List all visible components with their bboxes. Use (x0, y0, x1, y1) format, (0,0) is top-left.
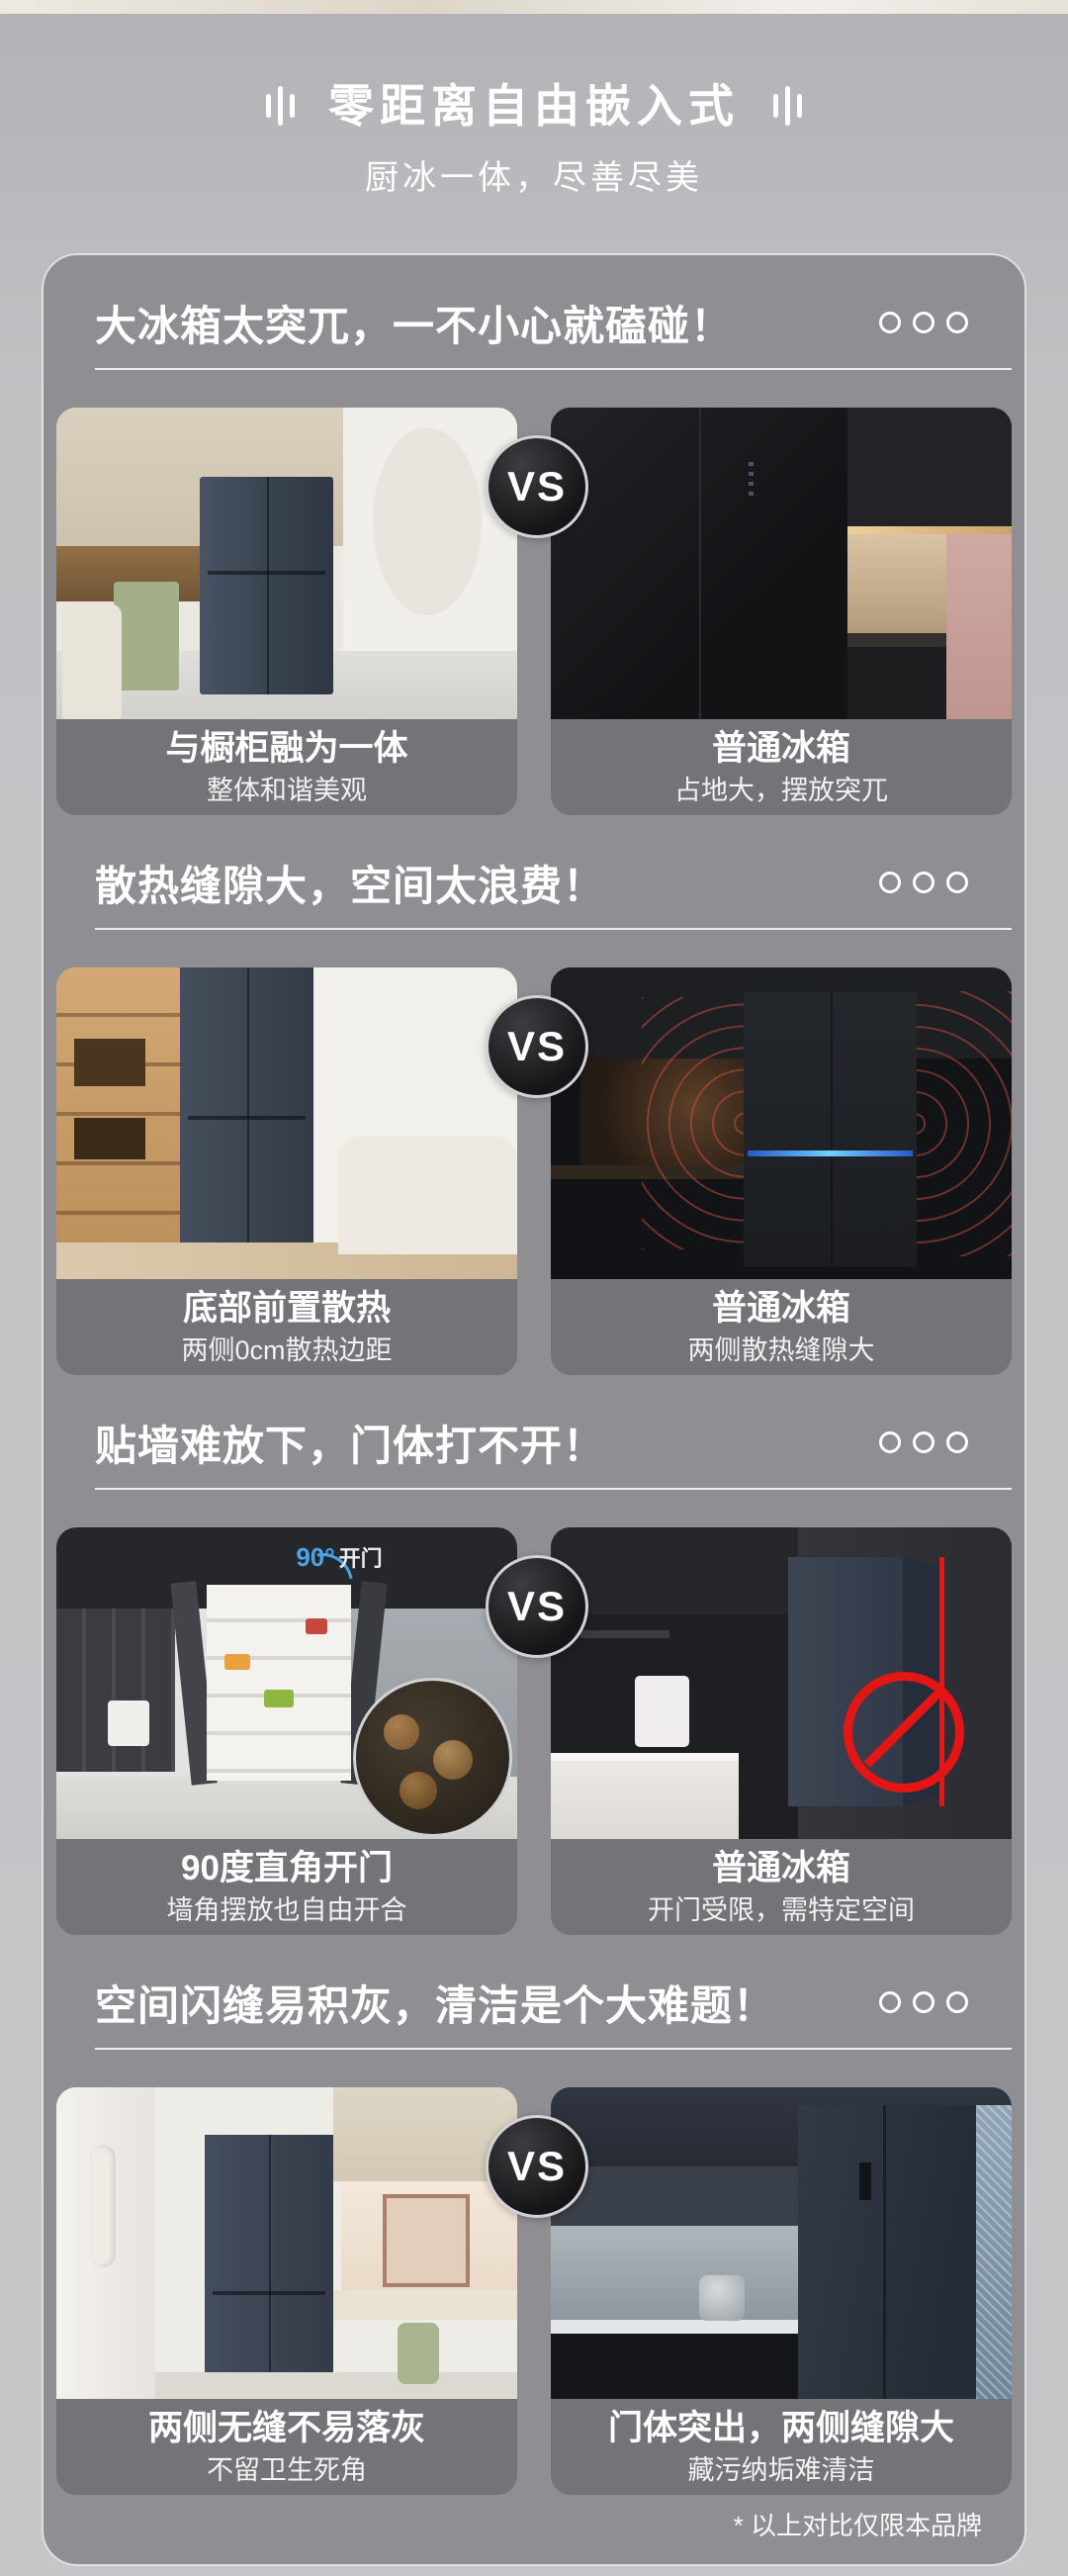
shelf-box-shape (74, 1039, 145, 1086)
wall-shelf-shape (56, 1609, 175, 1772)
more-dots-icon (879, 1431, 968, 1453)
jar-lid-shape (384, 1714, 419, 1750)
section-title: 空间闪缝易积灰，清洁是个大难题！ (95, 1973, 775, 2033)
disclaimer-footnote: * 以上对比仅限本品牌 (56, 2511, 982, 2540)
caption-title: 与橱柜融为一体 (165, 729, 407, 769)
fridge-control-panel (859, 2162, 871, 2200)
caption-panel: 底部前置散热 两侧0cm散热边距 (56, 1279, 517, 1375)
caption-title: 普通冰箱 (712, 1289, 850, 1329)
pot-shape (699, 2275, 745, 2321)
section-door-opening: 贴墙难放下，门体打不开！ VS (56, 1375, 1012, 1935)
wall-sconce-shape (90, 2145, 116, 2267)
coffee-machine-shape (635, 1676, 689, 1747)
left-panel: 两侧无缝不易落灰 不留卫生死角 (56, 2087, 517, 2495)
caption-sub: 不留卫生死角 (207, 2454, 367, 2486)
fridge-door-seam (247, 967, 249, 1242)
frost-texture-shape (976, 2105, 1012, 2399)
light-strip-shape (847, 526, 1012, 534)
section-bump-risk: 大冰箱太突兀，一不小心就磕碰！ VS (56, 255, 1012, 815)
more-dots-icon (879, 872, 968, 893)
caption-panel: 普通冰箱 开门受限，需特定空间 (551, 1839, 1012, 1935)
upper-cabinet-shape (847, 408, 1012, 526)
section-heat-gap: 散热缝隙大，空间太浪费！ VS (56, 815, 1012, 1375)
right-panel: 普通冰箱 开门受限，需特定空间 (551, 1527, 1012, 1935)
pink-cabinet-shape (946, 534, 1012, 719)
food-item-shape (224, 1654, 250, 1670)
vs-badge-icon: VS (486, 435, 588, 538)
jar-lid-shape (400, 1772, 437, 1809)
photo-protruding-fridge (551, 2087, 1012, 2399)
fridge-shape (200, 477, 333, 694)
fridge-interior-shape (207, 1585, 351, 1781)
right-panel: 普通冰箱 占地大，摆放突兀 (551, 408, 1012, 815)
caption-sub: 两侧0cm散热边距 (181, 1334, 392, 1366)
section-title: 散热缝隙大，空间太浪费！ (95, 853, 605, 913)
led-light-strip (748, 1150, 913, 1156)
photo-front-venting-fridge (56, 967, 517, 1279)
heat-wave-shape (642, 997, 745, 1249)
backsplash-shape (551, 2226, 798, 2320)
fridge-door-seam (188, 1116, 306, 1120)
photo-seamless-fridge (56, 2087, 517, 2399)
more-dots-icon (879, 312, 968, 333)
coffee-machine-shape (108, 1701, 149, 1746)
product-detail-banner: 零距离自由嵌入式 厨冰一体，尽善尽美 大冰箱太突兀，一不小心就磕碰！ VS (0, 0, 1068, 2576)
sofa-shape (338, 1136, 517, 1254)
no-entry-icon (844, 1672, 964, 1793)
base-cabinet-shape (551, 2334, 798, 2399)
caption-sub: 墙角摆放也自由开合 (167, 1894, 407, 1926)
caption-panel: 门体突出，两侧缝隙大 藏污纳垢难清洁 (551, 2399, 1012, 2495)
caption-sub: 两侧散热缝隙大 (688, 1334, 875, 1366)
vs-badge-icon: VS (486, 2115, 588, 2218)
fridge-door-seam (267, 477, 269, 694)
caption-panel: 普通冰箱 两侧散热缝隙大 (551, 1279, 1012, 1375)
divider (95, 2048, 1012, 2050)
banner-title: 零距离自由嵌入式 (328, 81, 740, 131)
magnifier-inset (353, 1678, 512, 1837)
shelf-box-shape (74, 1118, 145, 1159)
section-title: 贴墙难放下，门体打不开！ (95, 1413, 605, 1473)
fridge-shape (180, 967, 313, 1242)
fridge-shape (205, 2135, 333, 2372)
caption-sub: 整体和谐美观 (207, 775, 367, 806)
caption-title: 两侧无缝不易落灰 (148, 2409, 425, 2448)
caption-title: 普通冰箱 (712, 1849, 850, 1888)
banner-subtitle: 厨冰一体，尽善尽美 (0, 158, 1068, 198)
fridge-door-seam (269, 2135, 271, 2372)
comparison-card: 大冰箱太突兀，一不小心就磕碰！ VS (42, 253, 1026, 2566)
left-panel: 与橱柜融为一体 整体和谐美观 (56, 408, 517, 815)
fridge-handle (208, 571, 325, 575)
comparison-row: VS (56, 1527, 1012, 1935)
fridge-door-seam (831, 992, 833, 1267)
caption-title: 普通冰箱 (712, 729, 850, 769)
caption-panel: 与橱柜融为一体 整体和谐美观 (56, 719, 517, 815)
heat-wave-shape (915, 991, 1012, 1256)
food-item-shape (264, 1690, 294, 1707)
wall-shelf-shape (580, 1630, 669, 1638)
vs-badge-icon: VS (486, 1555, 588, 1658)
fridge-door-seam (699, 408, 701, 719)
divider (95, 928, 1012, 930)
door-angle-annotation: 90°开门 (296, 1541, 382, 1573)
comparison-row: VS 底部前置散热 两侧 (56, 967, 1012, 1375)
triple-bars-icon (773, 86, 802, 126)
caption-panel: 90度直角开门 墙角摆放也自由开合 (56, 1839, 517, 1935)
right-panel: 普通冰箱 两侧散热缝隙大 (551, 967, 1012, 1375)
section-title: 大冰箱太突兀，一不小心就磕碰！ (95, 293, 733, 353)
caption-panel: 普通冰箱 占地大，摆放突兀 (551, 719, 1012, 815)
caption-sub: 占地大，摆放突兀 (674, 775, 888, 806)
banner-header: 零距离自由嵌入式 厨冰一体，尽善尽美 (0, 0, 1068, 198)
caption-title: 门体突出，两侧缝隙大 (608, 2409, 954, 2448)
divider (95, 368, 1012, 370)
comparison-row: VS (56, 408, 1012, 815)
vs-badge-icon: VS (486, 995, 588, 1098)
previous-section-edge (0, 0, 1068, 14)
triple-bars-icon (266, 86, 295, 126)
more-dots-icon (879, 1991, 968, 2013)
counter-shelf-shape (551, 2320, 798, 2334)
counter-shape (333, 2290, 517, 2320)
photo-embedded-fridge-kitchen (56, 408, 517, 719)
mid-cabinet-shape (551, 2166, 808, 2226)
section-dust-cleaning: 空间闪缝易积灰，清洁是个大难题！ VS (56, 1935, 1012, 2495)
caption-sub: 藏污纳垢难清洁 (688, 2454, 875, 2486)
photo-fridge-heat-waves (551, 967, 1012, 1279)
floor-shape (155, 2372, 517, 2399)
comparison-row: VS (56, 2087, 1012, 2495)
photo-90-degree-open-fridge: 90°开门 (56, 1527, 517, 1839)
chair-shape (114, 582, 179, 690)
island-counter-shape (551, 1753, 739, 1839)
caption-title: 90度直角开门 (181, 1849, 393, 1888)
food-item-shape (306, 1618, 327, 1634)
caption-title: 底部前置散热 (183, 1289, 391, 1329)
caption-panel: 两侧无缝不易落灰 不留卫生死角 (56, 2399, 517, 2495)
divider (95, 1488, 1012, 1490)
caption-sub: 开门受限，需特定空间 (648, 1894, 915, 1926)
photo-normal-fridge-dark (551, 408, 1012, 719)
wall-arch-shape (373, 427, 482, 615)
green-vase-shape (398, 2323, 439, 2384)
fridge-door-seam (883, 2105, 886, 2399)
stool-shape (62, 603, 122, 719)
fridge-handle (213, 2291, 325, 2295)
jar-lid-shape (433, 1740, 473, 1780)
right-panel: 门体突出，两侧缝隙大 藏污纳垢难清洁 (551, 2087, 1012, 2495)
left-panel: 90°开门 90度直角开门 墙角摆放也自由开合 (56, 1527, 517, 1935)
picture-frame-shape (383, 2194, 470, 2287)
fridge-display (749, 462, 754, 502)
photo-door-blocked-fridge (551, 1527, 1012, 1839)
left-panel: 底部前置散热 两侧0cm散热边距 (56, 967, 517, 1375)
fridge-shape (744, 992, 917, 1267)
